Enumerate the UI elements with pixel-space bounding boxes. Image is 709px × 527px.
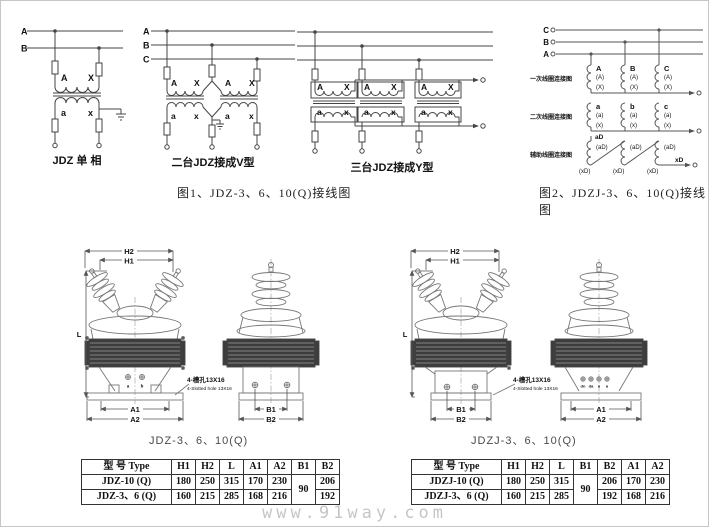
dim-l: L	[77, 330, 82, 339]
cell: 250	[526, 475, 550, 490]
cell: 180	[172, 475, 196, 490]
dim-l: L	[403, 330, 408, 339]
row2-label: 二次线圈连接图	[530, 113, 572, 121]
cell: 170	[244, 475, 268, 490]
cell-type: JDZ-10 (Q)	[82, 475, 172, 490]
secondary-label-a: a	[61, 108, 67, 118]
jdzj-wiring	[551, 28, 703, 167]
winding-label: X	[249, 78, 255, 88]
cell: 315	[220, 475, 244, 490]
auxiliary-coil	[655, 141, 659, 165]
fig2-caption: 图2、JDZJ-3、6、10(Q)接线图	[539, 184, 708, 218]
dim-h2: H2	[124, 247, 134, 256]
bus-label-b: B	[21, 44, 28, 54]
dim-b2: B2	[456, 415, 466, 424]
winding-label: x	[448, 107, 453, 117]
col-a2: A2	[268, 460, 292, 475]
dim-b1: B1	[456, 405, 466, 414]
slot-note-cn: 4-槽孔13X16	[187, 375, 225, 384]
table-row: JDZ-10 (Q) 180 250 315 170 230 90 206	[82, 475, 340, 490]
fuse-symbols	[164, 65, 260, 137]
single-phase-wiring	[27, 29, 126, 148]
terminal-label: b	[141, 384, 144, 389]
secondary-winding	[55, 98, 99, 104]
terminal-label: da	[589, 384, 594, 389]
watermark: www.91way.com	[1, 503, 708, 523]
winding-label: a	[421, 107, 426, 117]
winding-label: A	[421, 82, 427, 92]
coil-label: B	[630, 64, 636, 73]
table-row: JDZJ-10 (Q) 180 250 315 90 206 170 230	[412, 475, 670, 490]
cell-b1-merged: 90	[574, 475, 598, 505]
cell: 206	[598, 475, 622, 490]
col-b2: B2	[598, 460, 622, 475]
dim-h1: H1	[124, 257, 134, 266]
primary-label-A: A	[61, 73, 68, 83]
dimension-lines	[411, 251, 641, 421]
terminal-label: a	[127, 384, 130, 389]
cell: 170	[622, 475, 646, 490]
base-plate	[561, 393, 641, 400]
fig1-single-phase-diagram: A B A X a x JDZ 单 相	[19, 23, 139, 168]
coil-label: (aD)	[596, 145, 608, 151]
col-a1: A1	[622, 460, 646, 475]
secondary-coil	[587, 103, 591, 127]
winding-label: A	[317, 82, 323, 92]
secondary-winding	[167, 103, 203, 108]
terminal-label: n	[598, 384, 601, 389]
bus-label-a: A	[21, 27, 28, 37]
coil-label: (xD)	[579, 169, 590, 175]
dim-h1: H1	[450, 257, 460, 266]
terminal	[417, 149, 421, 153]
primary-winding	[221, 91, 257, 96]
primary-winding	[55, 87, 99, 93]
ground-symbol	[116, 109, 126, 120]
auxiliary-coil	[621, 141, 625, 165]
col-a2: A2	[646, 460, 670, 475]
jdz-outline-caption: JDZ-3、6、10(Q)	[149, 432, 248, 448]
terminal	[97, 143, 101, 147]
fig1-y-connection-diagram: A X A X A X a x a x a x 三台JDZ接成Y型	[297, 23, 497, 175]
primary-winding	[167, 91, 203, 96]
bushing	[144, 263, 190, 317]
terminal-label: dn	[581, 384, 586, 389]
bus-label-c: C	[543, 26, 549, 35]
coil-label: A	[596, 64, 602, 73]
coil-label: b	[630, 102, 635, 111]
cell: 206	[316, 475, 340, 490]
coil-label: (X)	[664, 85, 672, 91]
dim-a2: A2	[130, 415, 140, 424]
terminal	[360, 149, 364, 153]
terminal-label: a	[606, 384, 609, 389]
cell-type: JDZJ-10 (Q)	[412, 475, 502, 490]
slot-note-en: 4-Slotted hole 13X16	[187, 386, 232, 392]
row3-label: 辅助线圈连接图	[530, 151, 572, 159]
dim-h2: H2	[450, 247, 460, 256]
dim-a1: A1	[596, 405, 606, 414]
coil-label: a	[596, 102, 601, 111]
dim-a2: A2	[596, 415, 606, 424]
terminal	[165, 145, 169, 149]
ground-symbol	[216, 120, 224, 129]
arrow	[473, 124, 479, 128]
datasheet-page: A B A X a x JDZ 单 相	[0, 0, 709, 527]
dim-a1: A1	[130, 405, 140, 414]
jdzj-outline-caption: JDZJ-3、6、10(Q)	[471, 432, 577, 448]
winding-label: a	[317, 107, 322, 117]
terminal	[53, 143, 57, 147]
output-label: xD	[675, 157, 684, 164]
winding-label: x	[194, 111, 199, 121]
slot-note-cn: 4-槽孔13X16	[513, 375, 551, 384]
dimension-lines	[85, 251, 303, 421]
bus-label-c: C	[143, 55, 150, 65]
coil-label: (xD)	[613, 169, 624, 175]
bus-label-a: A	[543, 50, 549, 59]
secondary-winding	[221, 103, 257, 108]
jdzj-outline-drawing: H2 H1 L B1 B2 A1 A2 dn da n a 4-槽孔13X16 …	[399, 241, 651, 427]
winding-label: X	[391, 82, 397, 92]
coil-label: (A)	[630, 75, 638, 81]
v-wiring	[151, 29, 295, 149]
coil-label: (A)	[596, 75, 604, 81]
primary-label-X: X	[88, 73, 94, 83]
bus-label-b: B	[543, 38, 549, 47]
col-l: L	[550, 460, 574, 475]
terminal	[210, 145, 214, 149]
coil-label: (xD)	[647, 169, 658, 175]
coil-label: (aD)	[630, 145, 642, 151]
bushing	[470, 263, 516, 317]
col-type: 型 号 Type	[82, 460, 172, 475]
jdz-outline-drawing: H2 H1 L A1 A2 B1 B2 a b 4-槽孔13X16 4-Slot…	[71, 241, 323, 427]
winding-label: a	[171, 111, 176, 121]
coil-label: (x)	[596, 123, 603, 129]
terminal	[481, 78, 485, 82]
winding-label: X	[448, 82, 454, 92]
cell: 230	[646, 475, 670, 490]
diagram-title-y: 三台JDZ接成Y型	[350, 160, 433, 174]
row1-label: 一次线圈连接图	[530, 75, 572, 83]
terminal	[255, 145, 259, 149]
col-b2: B2	[316, 460, 340, 475]
cell: 230	[268, 475, 292, 490]
terminal	[481, 124, 485, 128]
primary-coil	[655, 65, 659, 89]
cell-b1-merged: 90	[292, 475, 316, 505]
col-b1: B1	[574, 460, 598, 475]
col-b1: B1	[292, 460, 316, 475]
coil-label: (x)	[664, 123, 671, 129]
fig1-v-connection-diagram: A B C A X A X a x a x 二台JDZ接成V型	[141, 23, 299, 171]
secondary-coil	[655, 103, 659, 127]
arrow	[473, 78, 479, 82]
coil-label: (aD)	[664, 145, 676, 151]
diagram-title-single: JDZ 单 相	[53, 153, 102, 167]
dim-b2: B2	[266, 415, 276, 424]
winding-label: X	[194, 78, 200, 88]
coil-label: (X)	[596, 85, 604, 91]
coil-label: aD	[595, 134, 604, 141]
winding-label: A	[225, 78, 231, 88]
col-type: 型 号 Type	[412, 460, 502, 475]
coil-label: C	[664, 64, 670, 73]
table-header-row: 型 号 Type H1 H2 L A1 A2 B1 B2	[82, 460, 340, 475]
bus-label-b: B	[143, 41, 150, 51]
jdzj-dimension-table: 型 号 Type H1 H2 L B1 B2 A1 A2 JDZJ-10 (Q)…	[411, 459, 670, 505]
coil-label: (a)	[596, 113, 603, 119]
diagram-title-v: 二台JDZ接成V型	[171, 155, 254, 169]
secondary-label-x: x	[88, 108, 93, 118]
dim-b1: B1	[266, 405, 276, 414]
col-h2: H2	[526, 460, 550, 475]
winding-label: A	[171, 78, 177, 88]
winding-label: x	[391, 107, 396, 117]
col-a1: A1	[244, 460, 268, 475]
col-l: L	[220, 460, 244, 475]
primary-coil	[587, 65, 591, 89]
terminal	[313, 149, 317, 153]
coil-label: c	[664, 102, 668, 111]
winding-label: X	[344, 82, 350, 92]
auxiliary-coil	[587, 141, 591, 165]
slot-note-en: 4-Slotted hole 13X16	[513, 386, 558, 392]
coil-label: (X)	[630, 85, 638, 91]
table-header-row: 型 号 Type H1 H2 L B1 B2 A1 A2	[412, 460, 670, 475]
coil-label: (a)	[630, 113, 637, 119]
winding-label: a	[364, 107, 369, 117]
col-h1: H1	[502, 460, 526, 475]
fig1-caption: 图1、JDZ-3、6、10(Q)接线图	[177, 184, 351, 201]
cell: 180	[502, 475, 526, 490]
secondary-coil	[621, 103, 625, 127]
winding-label: x	[249, 111, 254, 121]
cell: 250	[196, 475, 220, 490]
coil-label: (x)	[630, 123, 637, 129]
bus-label-a: A	[143, 27, 150, 37]
coil-label: (a)	[664, 113, 671, 119]
col-h2: H2	[196, 460, 220, 475]
col-h1: H1	[172, 460, 196, 475]
winding-label: a	[225, 111, 230, 121]
winding-label: A	[364, 82, 370, 92]
primary-coil	[621, 65, 625, 89]
winding-label: x	[344, 107, 349, 117]
cell: 315	[550, 475, 574, 490]
jdz-dimension-table: 型 号 Type H1 H2 L A1 A2 B1 B2 JDZ-10 (Q) …	[81, 459, 340, 505]
coil-label: (A)	[664, 75, 672, 81]
fig2-jdzj-connection-diagram: C B A 一次线圈连接图 二次线圈连接图 辅助线圈连接图 A B C (A) …	[529, 21, 709, 183]
